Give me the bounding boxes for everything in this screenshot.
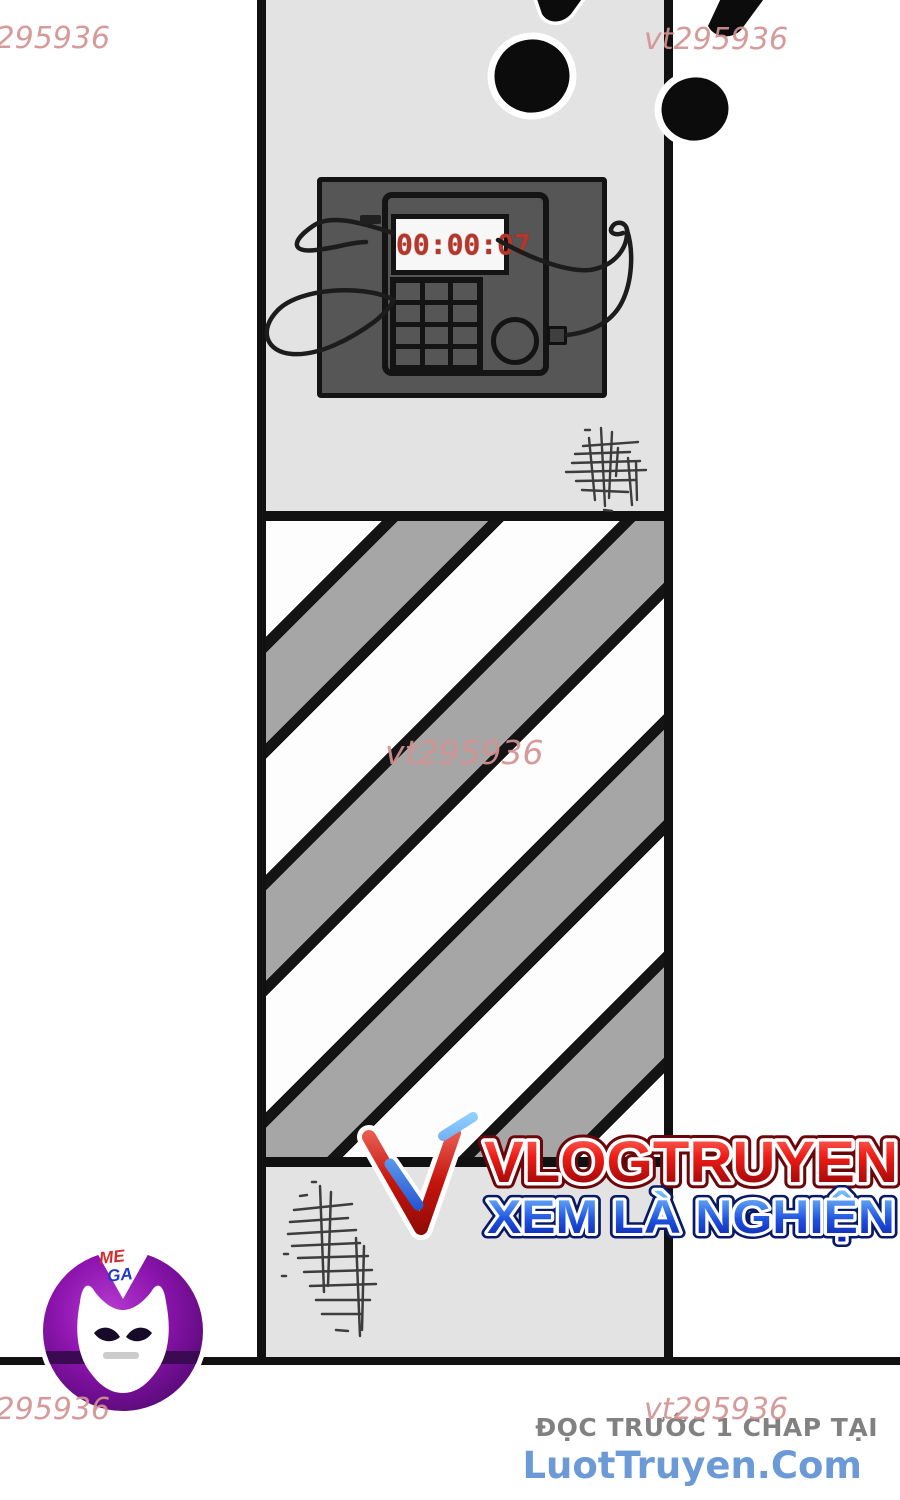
watermark-bottom-right: vt295936 xyxy=(644,1392,788,1427)
floor-line xyxy=(0,1357,900,1365)
mascot-circle xyxy=(43,1251,203,1411)
footer-site-name: LuotTruyen.Com xyxy=(522,1444,862,1487)
watermark-middle: vt295936 xyxy=(385,733,543,772)
bomb-dial-button xyxy=(491,317,539,365)
hazard-stripes-section xyxy=(266,521,664,1157)
watermark-bottom-left: vt295936 xyxy=(0,1392,110,1427)
mascot-badge-text-blue: GA xyxy=(106,1264,133,1286)
mascot-logo: ME GA xyxy=(38,1242,210,1416)
bomb-keypad xyxy=(390,277,483,371)
panel-section-bottom xyxy=(266,1167,664,1357)
bomb-wire-connector xyxy=(547,326,567,345)
mascot-notch xyxy=(91,1242,155,1299)
watermark-top-right: vt295936 xyxy=(644,22,788,57)
panel-divider-top xyxy=(266,511,664,521)
mascot-eye-right xyxy=(126,1328,152,1342)
panel-divider-bottom xyxy=(266,1157,664,1167)
bomb-timer-display: 00:00:07 xyxy=(391,214,509,275)
mascot-eye-left xyxy=(94,1328,120,1342)
comic-page: vt295936 vt295936 vt295936 vt295936 vt29… xyxy=(0,0,900,1500)
mascot-badge-text-red: ME xyxy=(98,1246,126,1268)
watermark-top-left: vt295936 xyxy=(0,21,110,56)
mascot-halo xyxy=(38,1246,208,1416)
mascot-face xyxy=(77,1286,169,1393)
